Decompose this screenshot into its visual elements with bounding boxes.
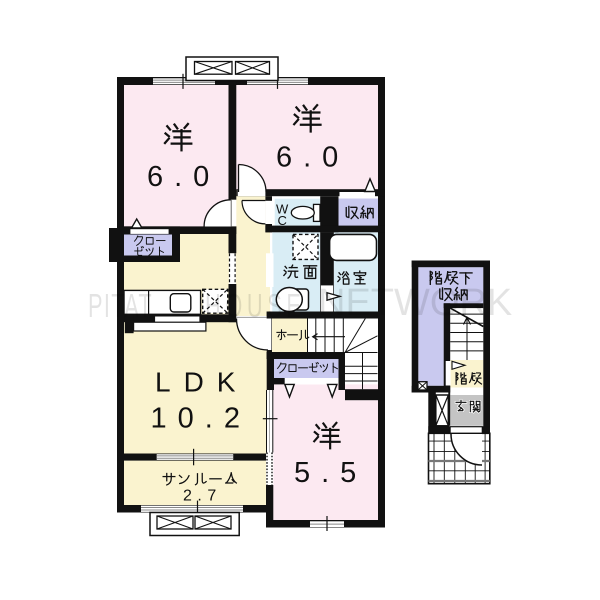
svg-text:2.7: 2.7 xyxy=(183,487,222,504)
svg-text:6.0: 6.0 xyxy=(147,161,220,193)
svg-text:HOUSE: HOUSE xyxy=(205,287,306,324)
svg-text:C: C xyxy=(278,213,287,228)
svg-text:6.0: 6.0 xyxy=(276,141,349,173)
svg-text:PITAT: PITAT xyxy=(88,287,153,324)
svg-text:5.5: 5.5 xyxy=(294,457,367,489)
svg-text:LDK: LDK xyxy=(155,366,248,397)
svg-text:NETWORK: NETWORK xyxy=(318,282,512,324)
svg-text:10.2: 10.2 xyxy=(151,403,251,435)
